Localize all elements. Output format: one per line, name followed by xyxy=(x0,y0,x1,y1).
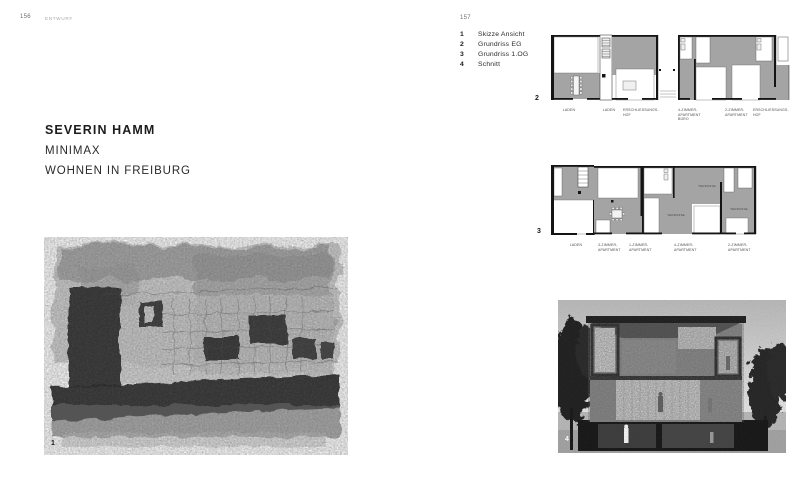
legend-row: 4 Schnitt xyxy=(460,61,528,71)
legend-label: Grundriss 1.OG xyxy=(478,51,528,58)
project-title: MINIMAX xyxy=(45,145,191,157)
project-title-block: SEVERIN HAMM MINIMAX WOHNEN IN FREIBURG xyxy=(45,123,191,184)
plan-eg-label: LADEN xyxy=(558,108,580,113)
terrasse-label: TERRASSE xyxy=(730,207,748,211)
plan-eg-label: 2-ZIMMER- APARTMENT xyxy=(725,108,748,117)
legend-row: 3 Grundriss 1.OG xyxy=(460,51,528,61)
plan-eg-label: ERSCHLIESSUNGS- HOF xyxy=(623,108,659,117)
plan-og-label: 3-ZIMMER- APARTMENT xyxy=(598,243,621,252)
plan-eg-label: 4-ZIMMER- APARTMENT BÜRO xyxy=(678,108,701,122)
plan-eg-label: LADEN xyxy=(598,108,620,113)
figure-legend: 1 Skizze Ansicht 2 Grundriss EG 3 Grundr… xyxy=(460,31,528,71)
terrasse-label: TERRASSE xyxy=(698,184,716,188)
legend-label: Grundriss EG xyxy=(478,41,522,48)
book-spread: 156 ENTWURF SEVERIN HAMM MINIMAX WOHNEN … xyxy=(0,0,800,488)
legend-label: Schnitt xyxy=(478,61,500,68)
project-subtitle: WOHNEN IN FREIBURG xyxy=(45,165,191,177)
figure-2-number: 2 xyxy=(535,95,539,102)
figure-3-number: 3 xyxy=(537,228,541,235)
floor-plan-og-drawing: TERRASSE TERRASSE TERRASSE xyxy=(548,162,760,240)
legend-number: 4 xyxy=(460,61,478,68)
legend-number: 1 xyxy=(460,31,478,38)
legend-number: 2 xyxy=(460,41,478,48)
plan-og-label: LADEN xyxy=(565,243,587,248)
figure-sketch: 1 xyxy=(44,237,348,455)
running-head: ENTWURF xyxy=(45,16,73,21)
figure-plan-eg xyxy=(545,29,791,109)
legend-row: 1 Skizze Ansicht xyxy=(460,31,528,41)
figure-4-number: 4 xyxy=(565,436,569,443)
legend-row: 2 Grundriss EG xyxy=(460,41,528,51)
legend-number: 3 xyxy=(460,51,478,58)
terrasse-label: TERRASSE xyxy=(667,213,685,217)
page-number-left: 156 xyxy=(20,14,31,20)
section-render-image xyxy=(558,300,786,453)
legend-label: Skizze Ansicht xyxy=(478,31,525,38)
plan-eg-label: ERSCHLIESSUNGS- HOF xyxy=(753,108,789,117)
page-number-right: 157 xyxy=(460,15,471,21)
plan-og-label: 1-ZIMMER- APARTMENT xyxy=(629,243,652,252)
plan-og-label: 4-ZIMMER- APARTMENT xyxy=(674,243,697,252)
author-name: SEVERIN HAMM xyxy=(45,123,191,137)
charcoal-sketch-drawing xyxy=(44,237,348,455)
figure-plan-og: TERRASSE TERRASSE TERRASSE xyxy=(548,162,760,240)
figure-section-render: 4 xyxy=(558,300,786,453)
floor-plan-eg-drawing xyxy=(545,29,791,109)
plan-og-label: 2-ZIMMER- APARTMENT xyxy=(728,243,751,252)
figure-1-number: 1 xyxy=(51,440,55,447)
